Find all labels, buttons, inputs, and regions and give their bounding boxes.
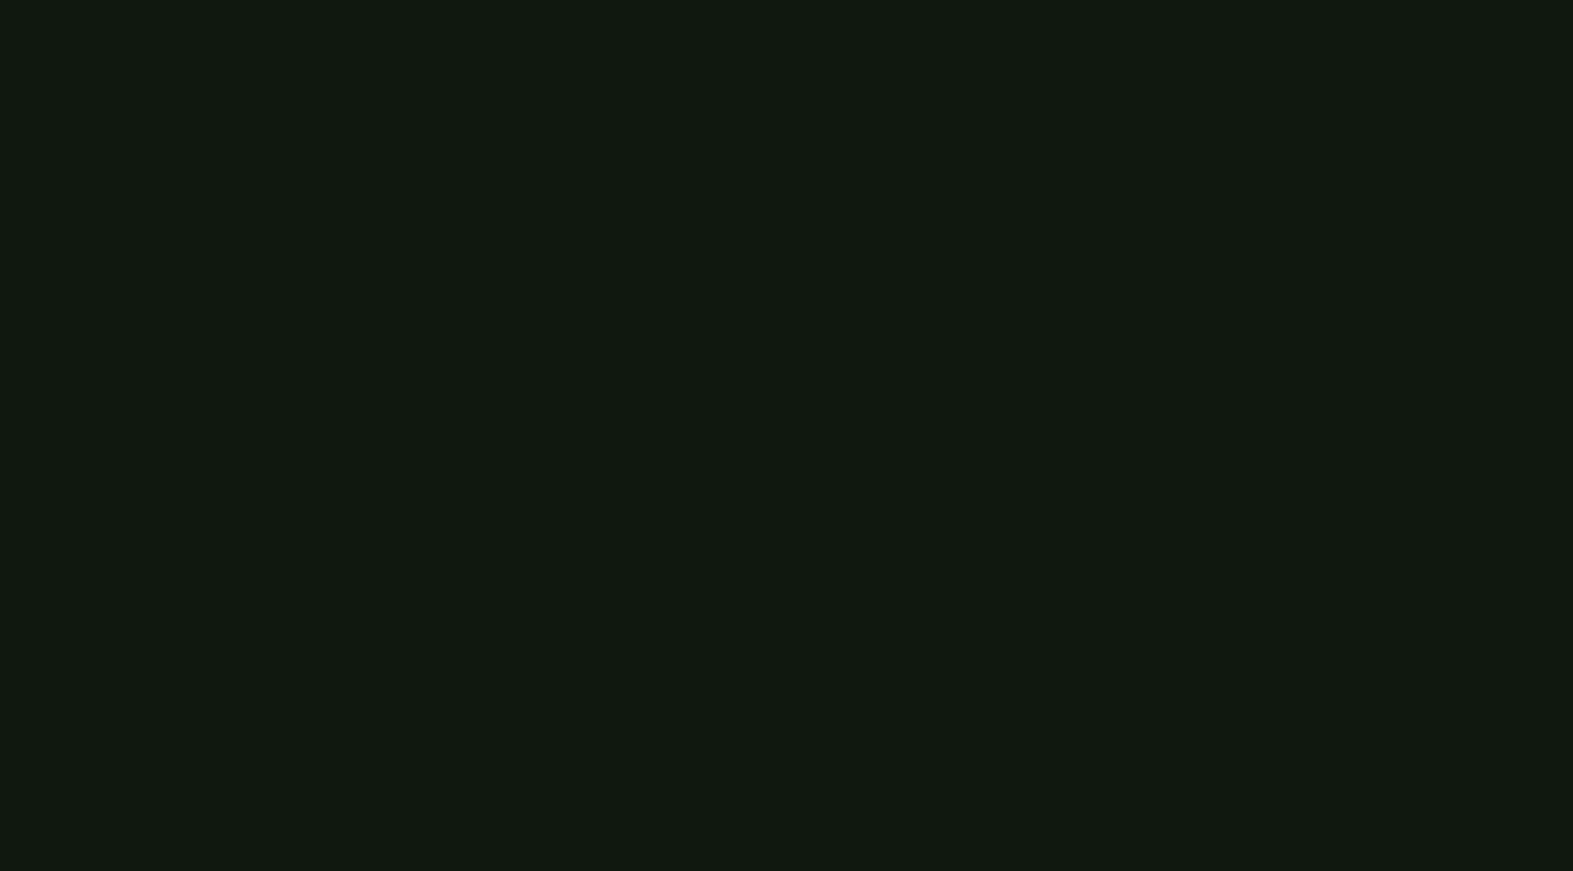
aerial-development-rendering xyxy=(0,0,300,150)
rendering-stage xyxy=(0,0,1573,871)
